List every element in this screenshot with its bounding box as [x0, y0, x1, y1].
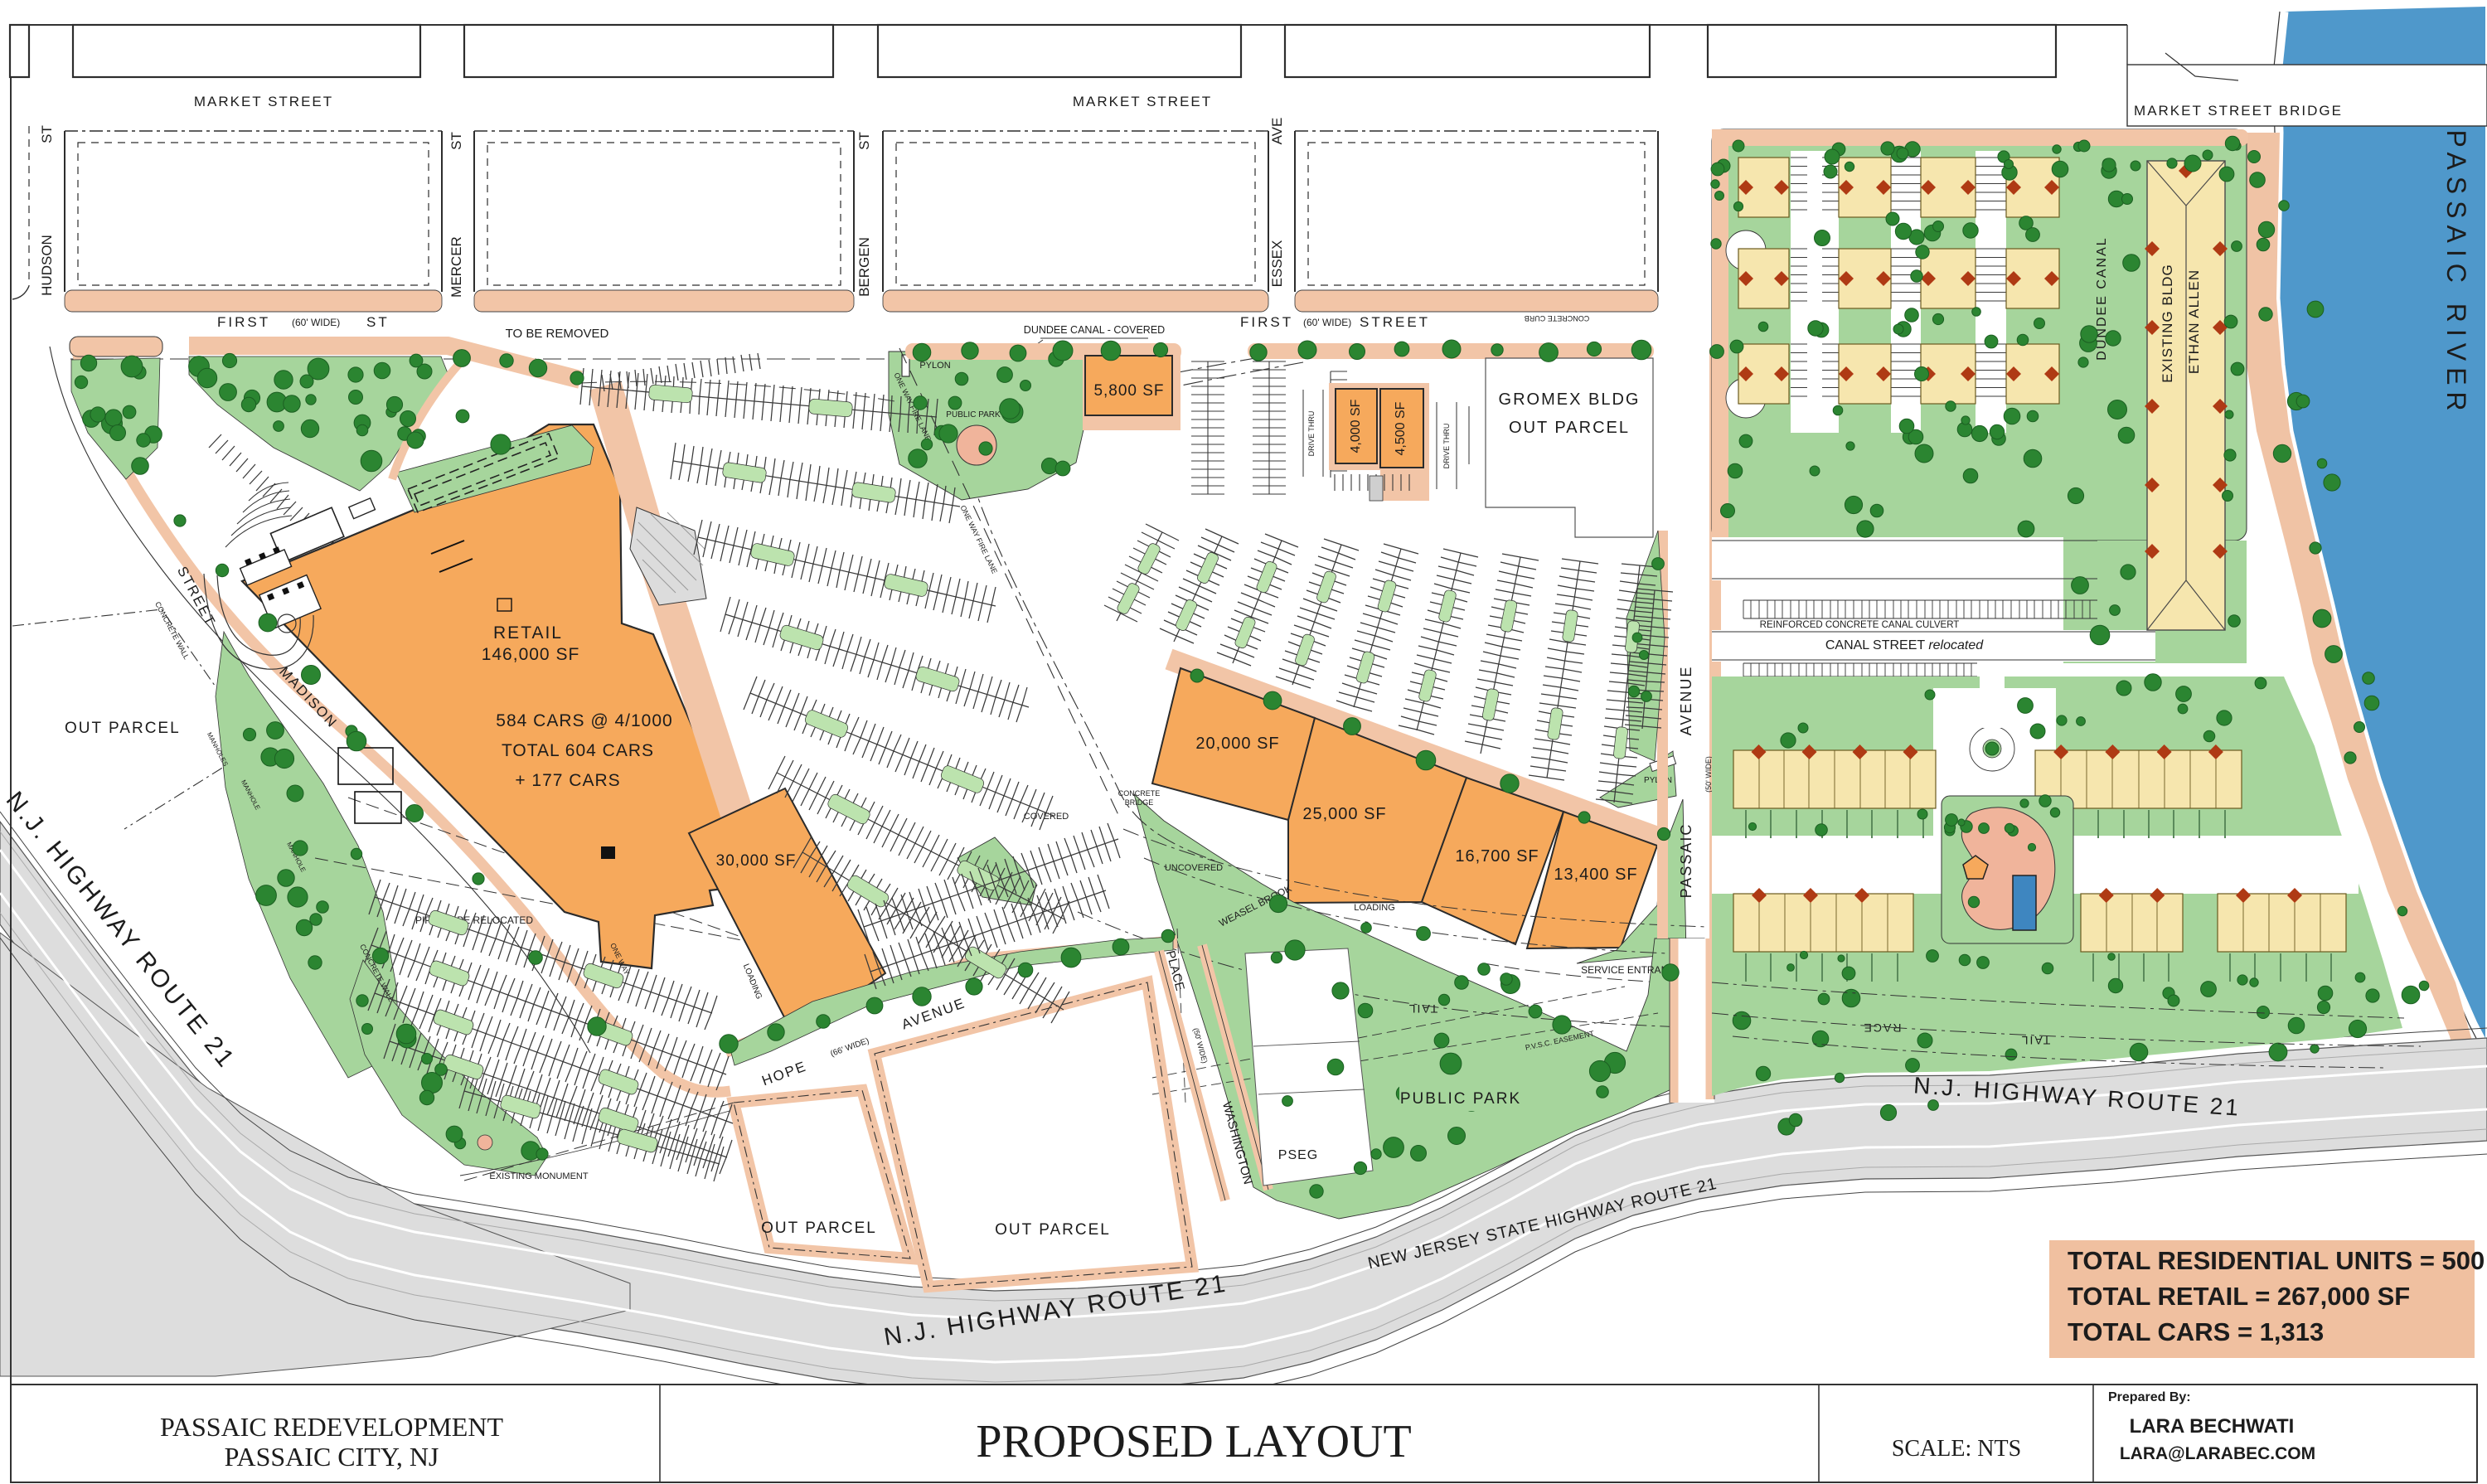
svg-text:EXISTING BLDG: EXISTING BLDG [2160, 264, 2175, 382]
svg-text:GROMEX BLDG: GROMEX BLDG [1499, 390, 1641, 409]
svg-text:20,000 SF: 20,000 SF [1195, 735, 1279, 753]
svg-text:PUBLIC PARK: PUBLIC PARK [1400, 1090, 1521, 1108]
svg-text:CONCRETE CURB: CONCRETE CURB [1525, 314, 1590, 323]
svg-text:OUT PARCEL: OUT PARCEL [1509, 419, 1630, 437]
svg-text:FIRST: FIRST [217, 314, 270, 330]
svg-text:UNCOVERED: UNCOVERED [1165, 863, 1223, 873]
svg-text:TAIL: TAIL [1408, 1002, 1438, 1016]
svg-text:CONCRETE: CONCRETE [1118, 789, 1161, 798]
svg-text:PYLON: PYLON [919, 361, 950, 371]
svg-text:PROPOSED LAYOUT: PROPOSED LAYOUT [976, 1416, 1411, 1467]
svg-text:MERCER: MERCER [448, 236, 464, 298]
svg-text:ST: ST [39, 125, 55, 143]
svg-text:DRIVE THRU: DRIVE THRU [1307, 411, 1316, 457]
svg-text:ST: ST [366, 314, 390, 330]
svg-text:TOTAL RETAIL = 267,000 SF: TOTAL RETAIL = 267,000 SF [2068, 1282, 2410, 1311]
svg-text:OUT PARCEL: OUT PARCEL [995, 1221, 1111, 1239]
svg-text:PASSAIC RIVER: PASSAIC RIVER [2441, 129, 2471, 417]
svg-text:AVENUE: AVENUE [1678, 666, 1694, 736]
svg-text:TOTAL RESIDENTIAL UNITS = 500: TOTAL RESIDENTIAL UNITS = 500 [2068, 1246, 2485, 1275]
svg-text:PSEG: PSEG [1278, 1148, 1318, 1162]
svg-text:BRIDGE: BRIDGE [1125, 798, 1154, 807]
svg-text:TOTAL 604 CARS: TOTAL 604 CARS [502, 741, 654, 760]
svg-text:MARKET STREET: MARKET STREET [194, 94, 333, 109]
svg-text:HUDSON: HUDSON [39, 235, 55, 296]
svg-text:FIRST: FIRST [1240, 314, 1293, 330]
svg-text:RETAIL: RETAIL [493, 623, 563, 643]
svg-text:PUBLIC PARK: PUBLIC PARK [946, 410, 1001, 419]
svg-text:STREET: STREET [1360, 314, 1430, 330]
svg-text:Prepared By:: Prepared By: [2108, 1390, 2191, 1404]
svg-text:PASSAIC: PASSAIC [1678, 823, 1694, 899]
svg-text:EXISTING MONUMENT: EXISTING MONUMENT [489, 1171, 588, 1181]
svg-text:ST: ST [448, 132, 464, 150]
svg-text:13,400 SF: 13,400 SF [1554, 866, 1637, 884]
svg-text:CANAL STREET relocated: CANAL STREET relocated [1825, 638, 1984, 652]
svg-text:+ 177 CARS: + 177 CARS [515, 771, 620, 790]
svg-text:ESSEX: ESSEX [1269, 240, 1285, 288]
svg-text:(60' WIDE): (60' WIDE) [1303, 317, 1351, 328]
svg-text:30,000 SF: 30,000 SF [716, 852, 797, 870]
svg-text:SCALE: NTS: SCALE: NTS [1892, 1436, 2021, 1462]
svg-text:16,700 SF: 16,700 SF [1455, 847, 1539, 866]
svg-text:4,500 SF: 4,500 SF [1394, 401, 1408, 455]
svg-text:(50' WIDE): (50' WIDE) [1704, 756, 1713, 793]
svg-text:REINFORCED CONCRETE CANAL C: REINFORCED CONCRETE CANAL CULVERT [1760, 620, 1960, 630]
svg-text:ETHAN ALLEN: ETHAN ALLEN [2186, 269, 2202, 374]
svg-text:PASSAIC REDEVELOPMENT: PASSAIC REDEVELOPMENT [160, 1412, 503, 1442]
svg-text:MARKET STREET BRIDGE: MARKET STREET BRIDGE [2134, 103, 2343, 119]
svg-text:TOTAL CARS = 1,313: TOTAL CARS = 1,313 [2068, 1317, 2324, 1346]
svg-text:DUNDEE CANAL - COVERED: DUNDEE CANAL - COVERED [1024, 324, 1165, 336]
svg-text:TO BE REMOVED: TO BE REMOVED [506, 327, 609, 341]
svg-text:25,000 SF: 25,000 SF [1302, 805, 1386, 823]
svg-text:(60' WIDE): (60' WIDE) [292, 317, 340, 328]
svg-text:146,000 SF: 146,000 SF [482, 645, 580, 664]
svg-text:4,000 SF: 4,000 SF [1349, 399, 1363, 453]
svg-text:DRIVE THRU: DRIVE THRU [1442, 424, 1451, 469]
svg-text:OUT PARCEL: OUT PARCEL [761, 1220, 877, 1237]
svg-text:PASSAIC CITY, NJ: PASSAIC CITY, NJ [225, 1442, 439, 1472]
svg-text:MARKET STREET: MARKET STREET [1073, 94, 1212, 109]
svg-text:584 CARS @ 4/1000: 584 CARS @ 4/1000 [496, 711, 672, 730]
svg-text:LARA@LARABEC.COM: LARA@LARABEC.COM [2120, 1444, 2315, 1463]
svg-text:LOADING: LOADING [1354, 903, 1395, 913]
svg-text:5,800 SF: 5,800 SF [1093, 382, 1164, 400]
svg-text:OUT PARCEL: OUT PARCEL [65, 720, 181, 737]
svg-text:AVE: AVE [1269, 118, 1285, 145]
svg-text:LARA BECHWATI: LARA BECHWATI [2130, 1415, 2295, 1438]
svg-text:BERGEN: BERGEN [856, 237, 872, 297]
svg-text:ST: ST [856, 132, 872, 150]
